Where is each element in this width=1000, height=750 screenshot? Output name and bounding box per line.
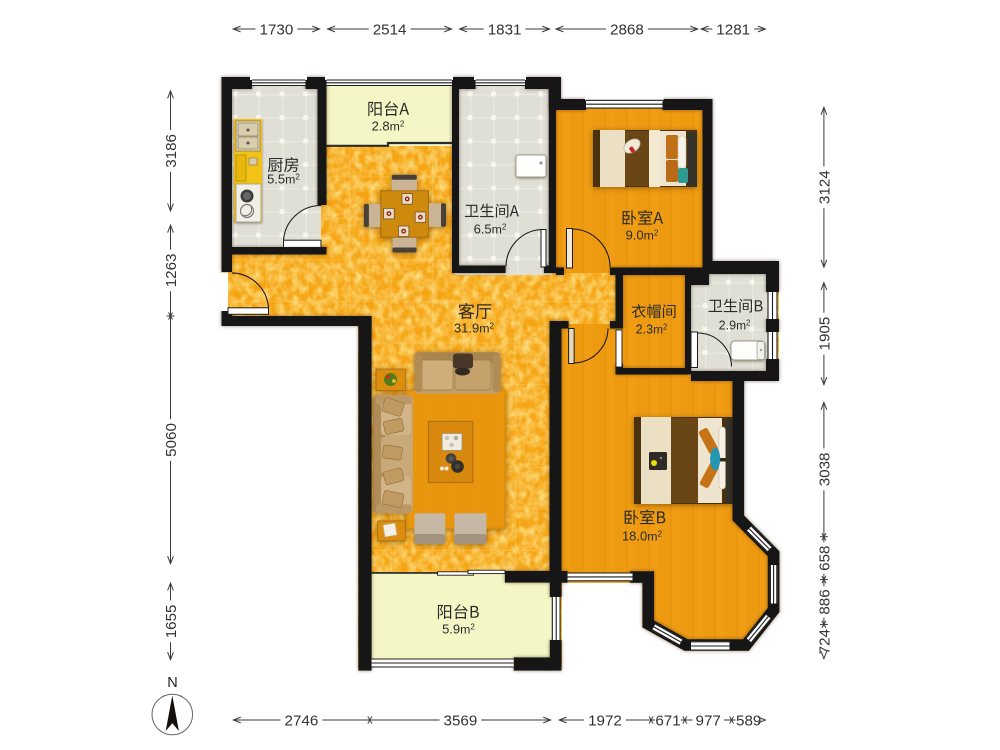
svg-text:31.9m2: 31.9m2 xyxy=(454,321,495,336)
svg-text:977: 977 xyxy=(696,713,721,730)
svg-text:1655: 1655 xyxy=(163,605,180,639)
svg-text:3124: 3124 xyxy=(816,170,833,204)
svg-text:1730: 1730 xyxy=(260,22,294,39)
svg-text:658: 658 xyxy=(816,546,833,571)
svg-text:5060: 5060 xyxy=(163,423,180,457)
svg-text:3038: 3038 xyxy=(816,453,833,487)
svg-text:2746: 2746 xyxy=(285,713,319,730)
svg-text:2.9m2: 2.9m2 xyxy=(719,319,751,333)
svg-text:1281: 1281 xyxy=(716,22,750,39)
svg-text:2.3m2: 2.3m2 xyxy=(636,323,668,337)
svg-text:886: 886 xyxy=(816,589,833,614)
svg-text:18.0m2: 18.0m2 xyxy=(622,529,663,544)
svg-text:N: N xyxy=(167,675,177,691)
svg-text:1263: 1263 xyxy=(163,254,180,288)
svg-text:589: 589 xyxy=(736,713,761,730)
svg-text:1831: 1831 xyxy=(488,22,522,39)
svg-text:3186: 3186 xyxy=(163,134,180,168)
svg-text:2868: 2868 xyxy=(610,22,644,39)
svg-text:2514: 2514 xyxy=(373,22,407,39)
svg-text:3569: 3569 xyxy=(444,713,478,730)
svg-text:671: 671 xyxy=(655,713,680,730)
svg-text:1905: 1905 xyxy=(816,317,833,351)
svg-text:724: 724 xyxy=(816,629,833,654)
svg-text:1972: 1972 xyxy=(588,713,622,730)
